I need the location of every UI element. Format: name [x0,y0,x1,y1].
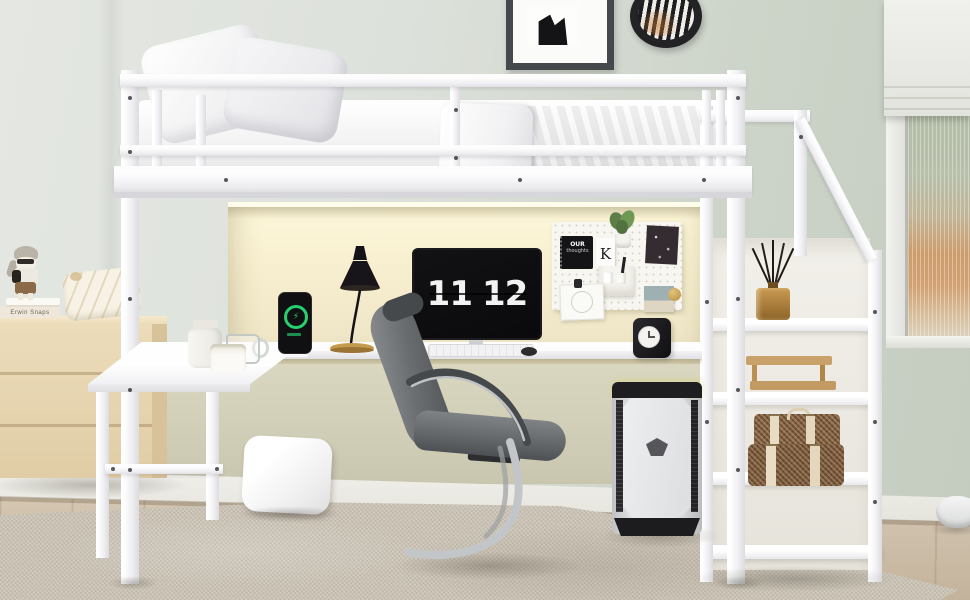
pc-front-face [623,398,691,516]
portrait-frame [506,0,614,70]
shelf-cup [604,272,613,284]
pillow-shadow [238,506,342,522]
suitcase-strap [810,444,820,486]
bed-leg-shadow [108,576,158,590]
shelf-cup [617,272,626,284]
pegboard-plant-pot [615,234,631,248]
toy-leg [28,293,33,300]
screw [128,150,132,154]
clock-hand-minute [649,336,655,338]
bed-leg-shadow [714,576,764,590]
letter-card-text: K [600,245,611,263]
pegboard-plant-leaves [616,220,628,234]
suitcase-strap [766,444,776,486]
charge-ring: ⚡ [284,305,308,329]
pegboard-notebook: OUR thoughts [560,236,593,269]
desk-return-leg [96,392,109,558]
suitcase-strap [806,414,815,448]
screw [128,297,132,301]
portrait-figure [535,7,571,45]
desk-return-stretcher [105,464,223,474]
shade-fold [884,108,970,110]
shade-fold [884,86,970,88]
toy-leg [18,293,23,300]
screw [736,96,740,100]
suitcase-bottom [748,444,844,486]
screw [873,500,877,504]
suitcase-strap [770,414,779,448]
floor-pillow [241,435,333,516]
charge-bolt-icon: ⚡ [293,313,299,322]
desk-clock-face [638,326,660,348]
screw [705,420,709,424]
stair-post-right [868,250,882,582]
lamp-finial [353,246,367,260]
gold-ornament [668,288,681,301]
screw [873,420,877,424]
diffuser-bottle [756,288,790,320]
wood-organizer-board [746,356,832,365]
pc-top-panel [612,382,702,398]
bed-platform-underside [114,192,752,198]
led-top-shadow [228,207,710,219]
screw [454,156,458,160]
chair-arm-chrome [412,377,524,440]
chair-cantilever-far [486,448,506,536]
bed-platform-beam [114,166,752,192]
notebook-subtitle: thoughts [562,248,593,254]
screw [736,297,740,301]
screw [215,467,219,471]
shade-fold [884,97,970,99]
screw [518,178,522,182]
cushion-knot [70,272,82,281]
notebook-title: OUR [562,241,593,248]
charge-label-bar [287,333,301,336]
book-spine-text: Erwin Snaps [10,310,49,316]
window-sill [886,336,970,348]
bed-pillow [221,35,350,146]
bedroom-scene: Erwin Snaps OUR thoughts K [0,0,970,600]
screw [705,300,709,304]
lamp-shade [340,261,380,288]
portrait-art [527,5,579,45]
polaroid-clip [574,279,582,288]
window-glass-flutes [908,112,970,340]
desk-return-leg [206,392,219,520]
robot-vacuum [936,496,970,528]
screw [454,108,458,112]
screw [224,178,228,182]
desk-return-edge [88,384,250,392]
screw [702,178,706,182]
wood-organizer-board [750,381,836,390]
screw [799,135,803,139]
screw [111,467,115,471]
screw [128,468,132,472]
guardrail-top [120,74,746,87]
pc-bottom-base [614,518,700,536]
pegboard-letter-card: K [596,238,615,269]
screw [128,96,132,100]
candle-cup [210,344,246,372]
zebra-warm-patch [642,10,682,36]
toy-glasses [17,259,34,264]
screw [736,468,740,472]
book-bottom: Erwin Snaps [0,307,60,318]
screw [873,310,877,314]
pegboard-dark-print [645,225,679,265]
screw [128,388,132,392]
screw [736,388,740,392]
pc-side-mesh [691,400,698,512]
toy-figurine [4,244,48,302]
guardrail-mid [120,145,746,156]
pc-side-mesh [616,400,623,512]
window-jamb-line [905,112,908,340]
chair-arm [410,373,527,442]
chair-frame [350,290,590,590]
